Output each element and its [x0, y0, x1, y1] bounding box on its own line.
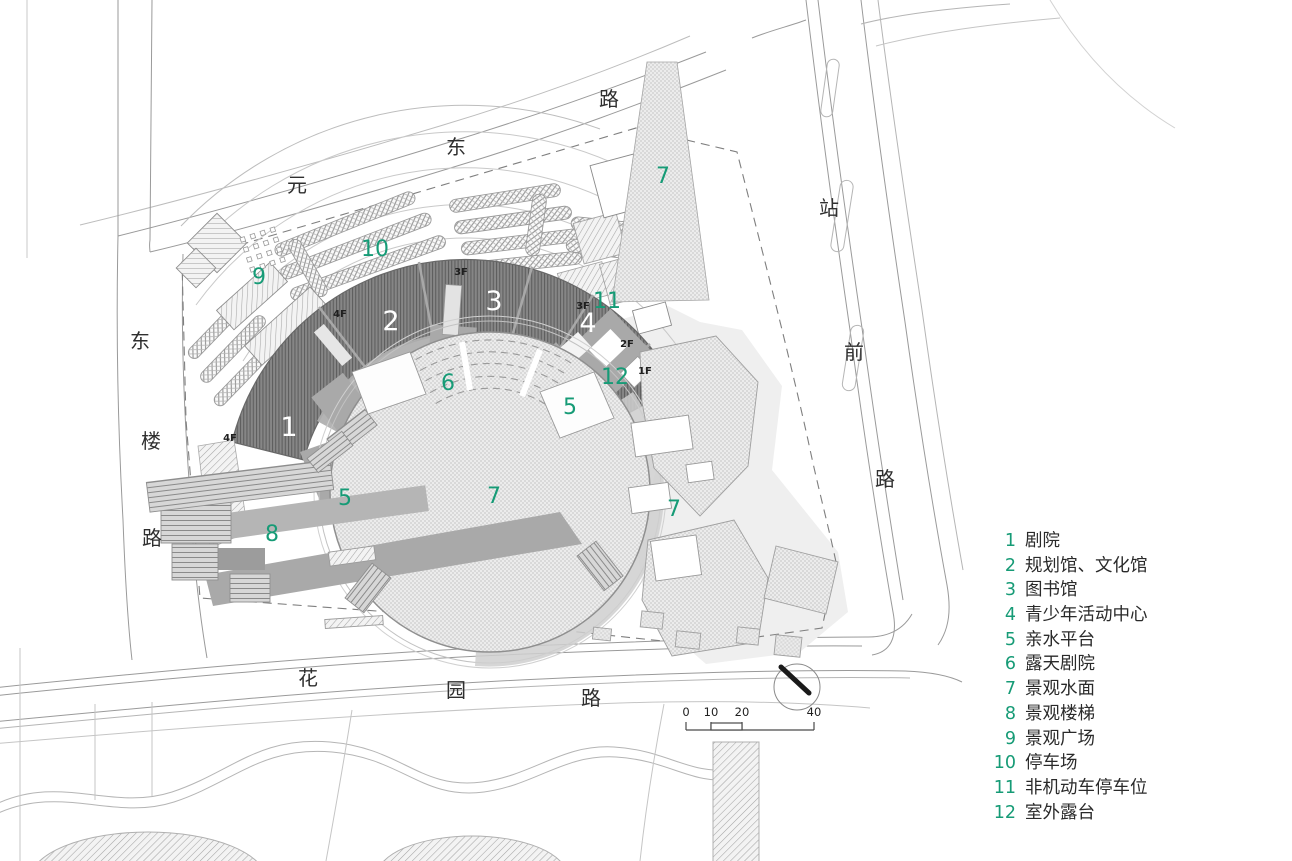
dot: [246, 257, 252, 263]
parking-row: [525, 193, 547, 256]
legend-label: 剧院: [1025, 529, 1060, 554]
road-label-hua-yuan-lu: 路: [581, 686, 601, 710]
road-label-zhan-qian-lu: 路: [875, 467, 895, 491]
legend-number: 4: [986, 603, 1016, 628]
legend-label: 室外露台: [1025, 801, 1095, 826]
legend-item: 12室外露台: [986, 801, 1148, 826]
dot: [273, 237, 279, 243]
area-number-5: 5: [338, 486, 352, 511]
scale-tick-10: 10: [704, 705, 719, 719]
checker-square: [675, 631, 701, 649]
road-label-hua-yuan-lu: 园: [446, 678, 466, 702]
water-platform: [686, 461, 714, 482]
road-label-yuan-dong-lu: 路: [599, 87, 619, 111]
legend-number: 11: [986, 776, 1016, 801]
dot: [256, 253, 262, 259]
parking-row: [461, 228, 580, 255]
dot: [276, 247, 282, 253]
legend-item: 8景观楼梯: [986, 702, 1148, 727]
checker-square: [736, 627, 760, 645]
floor-label-3F: 3F: [454, 267, 468, 278]
legend-number: 9: [986, 727, 1016, 752]
scale-tick-0: 0: [682, 705, 689, 719]
building-number-2: 2: [382, 306, 399, 337]
legend-item: 3图书馆: [986, 578, 1148, 603]
legend-item: 1剧院: [986, 529, 1148, 554]
floor-label-4F: 4F: [333, 309, 347, 320]
road-label-dong-lou-lu: 楼: [141, 429, 161, 453]
legend-number: 8: [986, 702, 1016, 727]
road-label-hua-yuan-lu: 花: [298, 666, 318, 690]
dot: [270, 227, 276, 233]
hatch-strip: [325, 615, 383, 628]
floor-label-3F: 3F: [576, 301, 590, 312]
legend-number: 10: [986, 751, 1016, 776]
area-number-6: 6: [441, 371, 455, 396]
road-label-yuan-dong-lu: 元: [287, 173, 307, 197]
legend-label: 景观水面: [1025, 677, 1095, 702]
water-platform: [628, 482, 671, 513]
building-number-3: 3: [485, 286, 502, 317]
area-number-9: 9: [252, 265, 266, 290]
legend-label: 露天剧院: [1025, 652, 1095, 677]
scale-tick-20: 20: [735, 705, 750, 719]
legend-label: 青少年活动中心: [1025, 603, 1148, 628]
south-park: [0, 648, 759, 861]
checker-square: [592, 627, 611, 641]
building-number-1: 1: [280, 412, 297, 443]
area-number-8: 8: [265, 522, 279, 547]
floor-label-1F: 1F: [638, 366, 652, 377]
road-label-yuan-dong-lu: 东: [446, 135, 466, 159]
legend-item: 5亲水平台: [986, 628, 1148, 653]
legend-item: 7景观水面: [986, 677, 1148, 702]
legend-label: 规划馆、文化馆: [1025, 554, 1148, 579]
legend-number: 1: [986, 529, 1016, 554]
legend-item: 11非机动车停车位: [986, 776, 1148, 801]
legend-number: 2: [986, 554, 1016, 579]
scale-bar: [686, 722, 814, 730]
legend-number: 6: [986, 652, 1016, 677]
stair-steps: [230, 574, 270, 602]
legend-item: 4青少年活动中心: [986, 603, 1148, 628]
legend-label: 图书馆: [1025, 578, 1078, 603]
road-label-dong-lou-lu: 路: [142, 526, 162, 550]
area-number-12: 12: [601, 365, 629, 390]
stair-steps: [172, 544, 218, 580]
legend-item: 9景观广场: [986, 727, 1148, 752]
site-plan-page: { "colors": { "accent_green": "#169b76",…: [0, 0, 1292, 861]
dot: [280, 257, 286, 263]
legend-label: 景观广场: [1025, 727, 1095, 752]
legend: 1剧院2规划馆、文化馆3图书馆4青少年活动中心5亲水平台6露天剧院7景观水面8景…: [986, 529, 1148, 825]
checker-square: [774, 635, 802, 658]
scale-tick-40: 40: [807, 705, 822, 719]
legend-item: 6露天剧院: [986, 652, 1148, 677]
dot: [250, 233, 256, 239]
area-number-7: 7: [656, 164, 670, 189]
area-number-5: 5: [563, 395, 577, 420]
water-platform: [650, 535, 701, 581]
road-label-zhan-qian-lu: 站: [819, 196, 839, 220]
area-number-11: 11: [593, 289, 621, 314]
legend-number: 5: [986, 628, 1016, 653]
dot: [263, 240, 269, 246]
legend-label: 景观楼梯: [1025, 702, 1095, 727]
legend-label: 停车场: [1025, 751, 1078, 776]
legend-label: 非机动车停车位: [1025, 776, 1148, 801]
dot: [240, 237, 246, 243]
road-label-zhan-qian-lu: 前: [844, 340, 864, 364]
floor-label-2F: 2F: [620, 339, 634, 350]
area-number-10: 10: [361, 237, 389, 262]
dot: [266, 250, 272, 256]
legend-label: 亲水平台: [1025, 628, 1095, 653]
dot: [253, 243, 259, 249]
floor-label-4F: 4F: [223, 433, 237, 444]
dot: [243, 247, 249, 253]
legend-number: 3: [986, 578, 1016, 603]
legend-number: 12: [986, 801, 1016, 826]
area-number-7: 7: [487, 484, 501, 509]
road-label-dong-lou-lu: 东: [130, 329, 150, 353]
legend-number: 7: [986, 677, 1016, 702]
checker-square: [640, 611, 664, 629]
legend-item: 2规划馆、文化馆: [986, 554, 1148, 579]
dot: [270, 260, 276, 266]
legend-item: 10停车场: [986, 751, 1148, 776]
dot: [260, 230, 266, 236]
area-number-7: 7: [667, 497, 681, 522]
